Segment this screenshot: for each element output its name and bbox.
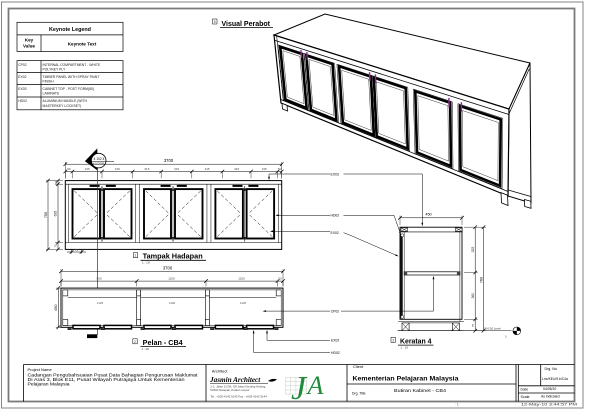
- svg-text:360: 360: [471, 293, 475, 299]
- svg-text:450: 450: [54, 305, 58, 311]
- svg-text:4 102 4: 4 102 4: [94, 157, 105, 161]
- svg-text:Keynote Legend: Keynote Legend: [49, 27, 91, 33]
- svg-text:3700: 3700: [163, 266, 173, 271]
- svg-text:1 : 10: 1 : 10: [142, 261, 150, 265]
- svg-text:1125: 1125: [97, 301, 104, 305]
- svg-text:FINISH: FINISH: [43, 79, 55, 83]
- svg-text:315: 315: [174, 167, 179, 171]
- svg-text:Scale: Scale: [521, 395, 530, 399]
- svg-text:Kementerian Pelajaran Malaysia: Kementerian Pelajaran Malaysia: [353, 376, 459, 383]
- svg-text:450: 450: [425, 213, 431, 217]
- svg-text:Drg. No: Drg. No: [545, 367, 557, 371]
- svg-text:315: 315: [115, 167, 120, 171]
- svg-text:2: 2: [134, 340, 136, 344]
- svg-text:5: 5: [214, 20, 216, 24]
- svg-text:315: 315: [262, 167, 267, 171]
- svg-text:Jasmin Architect: Jasmin Architect: [209, 376, 261, 384]
- svg-text:CABINET TOP - POST FORM(80): CABINET TOP - POST FORM(80): [43, 87, 95, 91]
- svg-text:TIMBER PANEL WITH SPRAY PAINT: TIMBER PANEL WITH SPRAY PAINT: [43, 75, 100, 79]
- svg-text:EX03: EX03: [331, 172, 339, 176]
- svg-text:HD02: HD02: [331, 351, 340, 355]
- svg-text:Date: Date: [521, 388, 529, 392]
- svg-text:: 1: : 1: [455, 403, 459, 407]
- svg-text:04/05/10: 04/05/10: [543, 387, 556, 391]
- svg-text:315: 315: [205, 167, 210, 171]
- svg-text:1 : 10: 1 : 10: [401, 345, 409, 349]
- svg-text:1: 1: [135, 254, 137, 258]
- svg-text:3700: 3700: [164, 158, 174, 163]
- svg-text:EX03: EX03: [18, 87, 26, 91]
- svg-text:EX02: EX02: [18, 75, 26, 79]
- svg-text:MASTERKEY LOCKSET): MASTERKEY LOCKSET): [43, 104, 82, 108]
- svg-text:Keynote Text: Keynote Text: [68, 42, 97, 47]
- svg-text:HD02: HD02: [18, 99, 27, 103]
- svg-text:1 : 10: 1 : 10: [141, 347, 149, 351]
- svg-text:50: 50: [279, 277, 283, 281]
- svg-text:B-0.00 Level: B-0.00 Level: [485, 326, 502, 330]
- svg-text:Tampak Hadapan: Tampak Hadapan: [143, 254, 203, 261]
- svg-text:Drg. Title: Drg. Title: [352, 392, 366, 396]
- svg-text:Tel : +603-4142 5143 Fax : +: Tel : +603-4142 5143 Fax : +603-4142 514…: [210, 395, 267, 399]
- svg-text:EX02: EX02: [331, 339, 339, 343]
- svg-text:760: 760: [479, 277, 483, 283]
- svg-text:Visual Perabot: Visual Perabot: [222, 19, 271, 28]
- svg-text:315: 315: [234, 167, 239, 171]
- svg-text:ALUMINIUM HANDLE (WITH: ALUMINIUM HANDLE (WITH: [43, 99, 88, 103]
- svg-text:CP02: CP02: [331, 310, 340, 314]
- svg-text:3: 3: [392, 338, 394, 342]
- svg-text:1125: 1125: [240, 301, 247, 305]
- svg-text:Lmr/KEU/9.b/C4a: Lmr/KEU/9.b/C4a: [542, 377, 568, 381]
- svg-text:Project Name: Project Name: [28, 367, 53, 372]
- svg-text:315: 315: [144, 167, 149, 171]
- svg-text:Keratan 4: Keratan 4: [400, 338, 432, 345]
- svg-text:CP02: CP02: [18, 63, 27, 67]
- svg-text:As indicated: As indicated: [541, 395, 560, 399]
- svg-text:1150: 1150: [168, 277, 175, 281]
- svg-text:Key: Key: [25, 38, 34, 43]
- svg-text:EX02: EX02: [331, 231, 339, 235]
- svg-text:315: 315: [85, 167, 90, 171]
- svg-text:A-102/5/B 4: A-102/5/B 4: [93, 161, 107, 165]
- svg-text:750: 750: [44, 212, 48, 218]
- svg-text:Pelajaran Malaysia: Pelajaran Malaysia: [28, 381, 71, 386]
- svg-text:HD02: HD02: [331, 214, 340, 218]
- svg-text:12-May-10 3:44:57 PM: 12-May-10 3:44:57 PM: [521, 402, 577, 407]
- svg-text:635: 635: [54, 211, 58, 217]
- svg-text:325: 325: [471, 247, 475, 253]
- svg-text:INTERNAL COMPARTMENT - WHITE: INTERNAL COMPARTMENT - WHITE: [43, 63, 101, 67]
- svg-text:50: 50: [67, 167, 71, 171]
- svg-text:LAMINATE: LAMINATE: [43, 92, 60, 96]
- svg-text:Value: Value: [23, 44, 35, 49]
- svg-text:75: 75: [54, 244, 58, 248]
- svg-text:40: 40: [54, 180, 58, 184]
- svg-text:Architect: Architect: [212, 369, 228, 374]
- svg-text:1100: 1100: [169, 301, 176, 305]
- svg-text:75: 75: [75, 248, 79, 252]
- svg-text:500: 500: [96, 277, 101, 281]
- svg-text:75: 75: [471, 324, 475, 328]
- svg-text:1150: 1150: [238, 277, 245, 281]
- svg-text:POLYREY PLY: POLYREY PLY: [43, 67, 67, 71]
- svg-text:Butiran Kabinet - CB4: Butiran Kabinet - CB4: [394, 388, 447, 393]
- svg-text:53300 Setapak, Kuala Lumpur: 53300 Setapak, Kuala Lumpur: [210, 388, 249, 392]
- svg-text:A: A: [306, 371, 324, 400]
- svg-text:50: 50: [278, 167, 282, 171]
- svg-text:J: J: [291, 370, 308, 407]
- svg-text:Client: Client: [353, 364, 364, 369]
